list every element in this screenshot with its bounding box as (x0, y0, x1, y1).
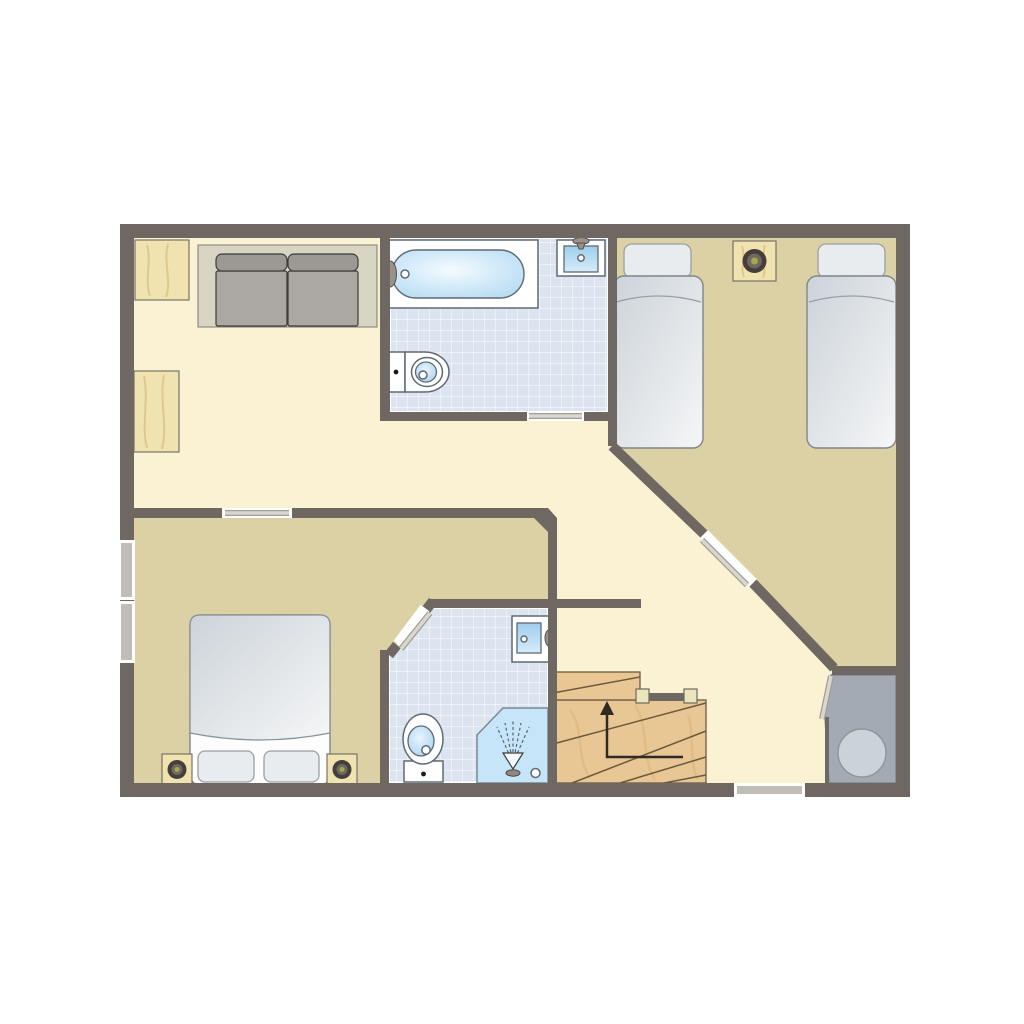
floor-speaker (162, 754, 192, 785)
bathtub (384, 240, 539, 308)
wall-double-bedroom-top (292, 508, 538, 518)
bathtub-drain (401, 270, 409, 278)
bathtub-basin (392, 250, 524, 298)
double-bed (190, 615, 330, 785)
shower-drain (531, 769, 540, 778)
wall-double-bedroom-top (120, 508, 222, 518)
wall-bathroom-bottom (380, 412, 527, 421)
flush-button (421, 772, 426, 777)
sofa-back-cushion (216, 254, 287, 271)
railing-post (636, 689, 649, 703)
toilet-drain (422, 746, 430, 754)
stair-lower-flight (553, 700, 706, 783)
wall-bathroom-left (380, 238, 390, 421)
round-tank (838, 729, 886, 777)
shower-head-base (506, 770, 520, 776)
sofa (198, 245, 377, 327)
stair-railing (649, 693, 686, 701)
window-left-upper (119, 540, 135, 600)
stair-upper-flight (553, 672, 640, 700)
bed-mattress (807, 276, 896, 448)
pillow (264, 751, 319, 782)
cabinet (134, 371, 179, 452)
outer-wall-top (120, 224, 910, 238)
sofa-seat-cushion (288, 271, 358, 326)
bed-mattress (614, 276, 703, 448)
window-glass (121, 543, 132, 597)
toilet (403, 714, 443, 782)
sofa-seat-cushion (216, 271, 287, 326)
wall-utility-left (825, 717, 829, 783)
single-bed (614, 244, 703, 448)
speaker-center (340, 767, 345, 772)
pillow (198, 751, 254, 782)
sofa-back-cushion (288, 254, 358, 271)
floor-plan-drawing (0, 0, 1024, 1024)
floor-speaker (327, 754, 357, 785)
window-bottom (734, 783, 805, 797)
pillow (624, 244, 691, 278)
basin-drain (521, 636, 527, 642)
washbasin (557, 238, 605, 277)
double-bedroom-furniture (162, 615, 357, 785)
speaker-center (751, 258, 758, 265)
wall-utility-top (832, 666, 897, 675)
washbasin (512, 616, 553, 662)
wall-stairs-head (429, 599, 641, 608)
speaker-table (733, 241, 776, 281)
wall-stairs-left (548, 527, 557, 783)
sideboard (135, 240, 189, 300)
window-left-lower (119, 601, 135, 663)
flush-button (394, 370, 399, 375)
toilet-drain (419, 371, 427, 379)
window-glass (121, 604, 132, 660)
wall-bathroom-bedroom (608, 238, 617, 446)
railing-post (684, 689, 697, 703)
window-glass (737, 786, 802, 794)
basin-drain (578, 255, 584, 261)
toilet (389, 352, 449, 392)
wall-diagonal-shower-room (389, 645, 397, 655)
outer-wall-right (896, 224, 910, 797)
wall-shower-room-left (380, 650, 389, 783)
single-bed (807, 244, 896, 448)
duvet (190, 615, 330, 740)
faucet-spout (577, 243, 585, 249)
wall-diagonal-shower-room (426, 601, 433, 610)
floor-plan-page (0, 0, 1024, 1024)
pillow (818, 244, 885, 278)
speaker-center (175, 767, 180, 772)
